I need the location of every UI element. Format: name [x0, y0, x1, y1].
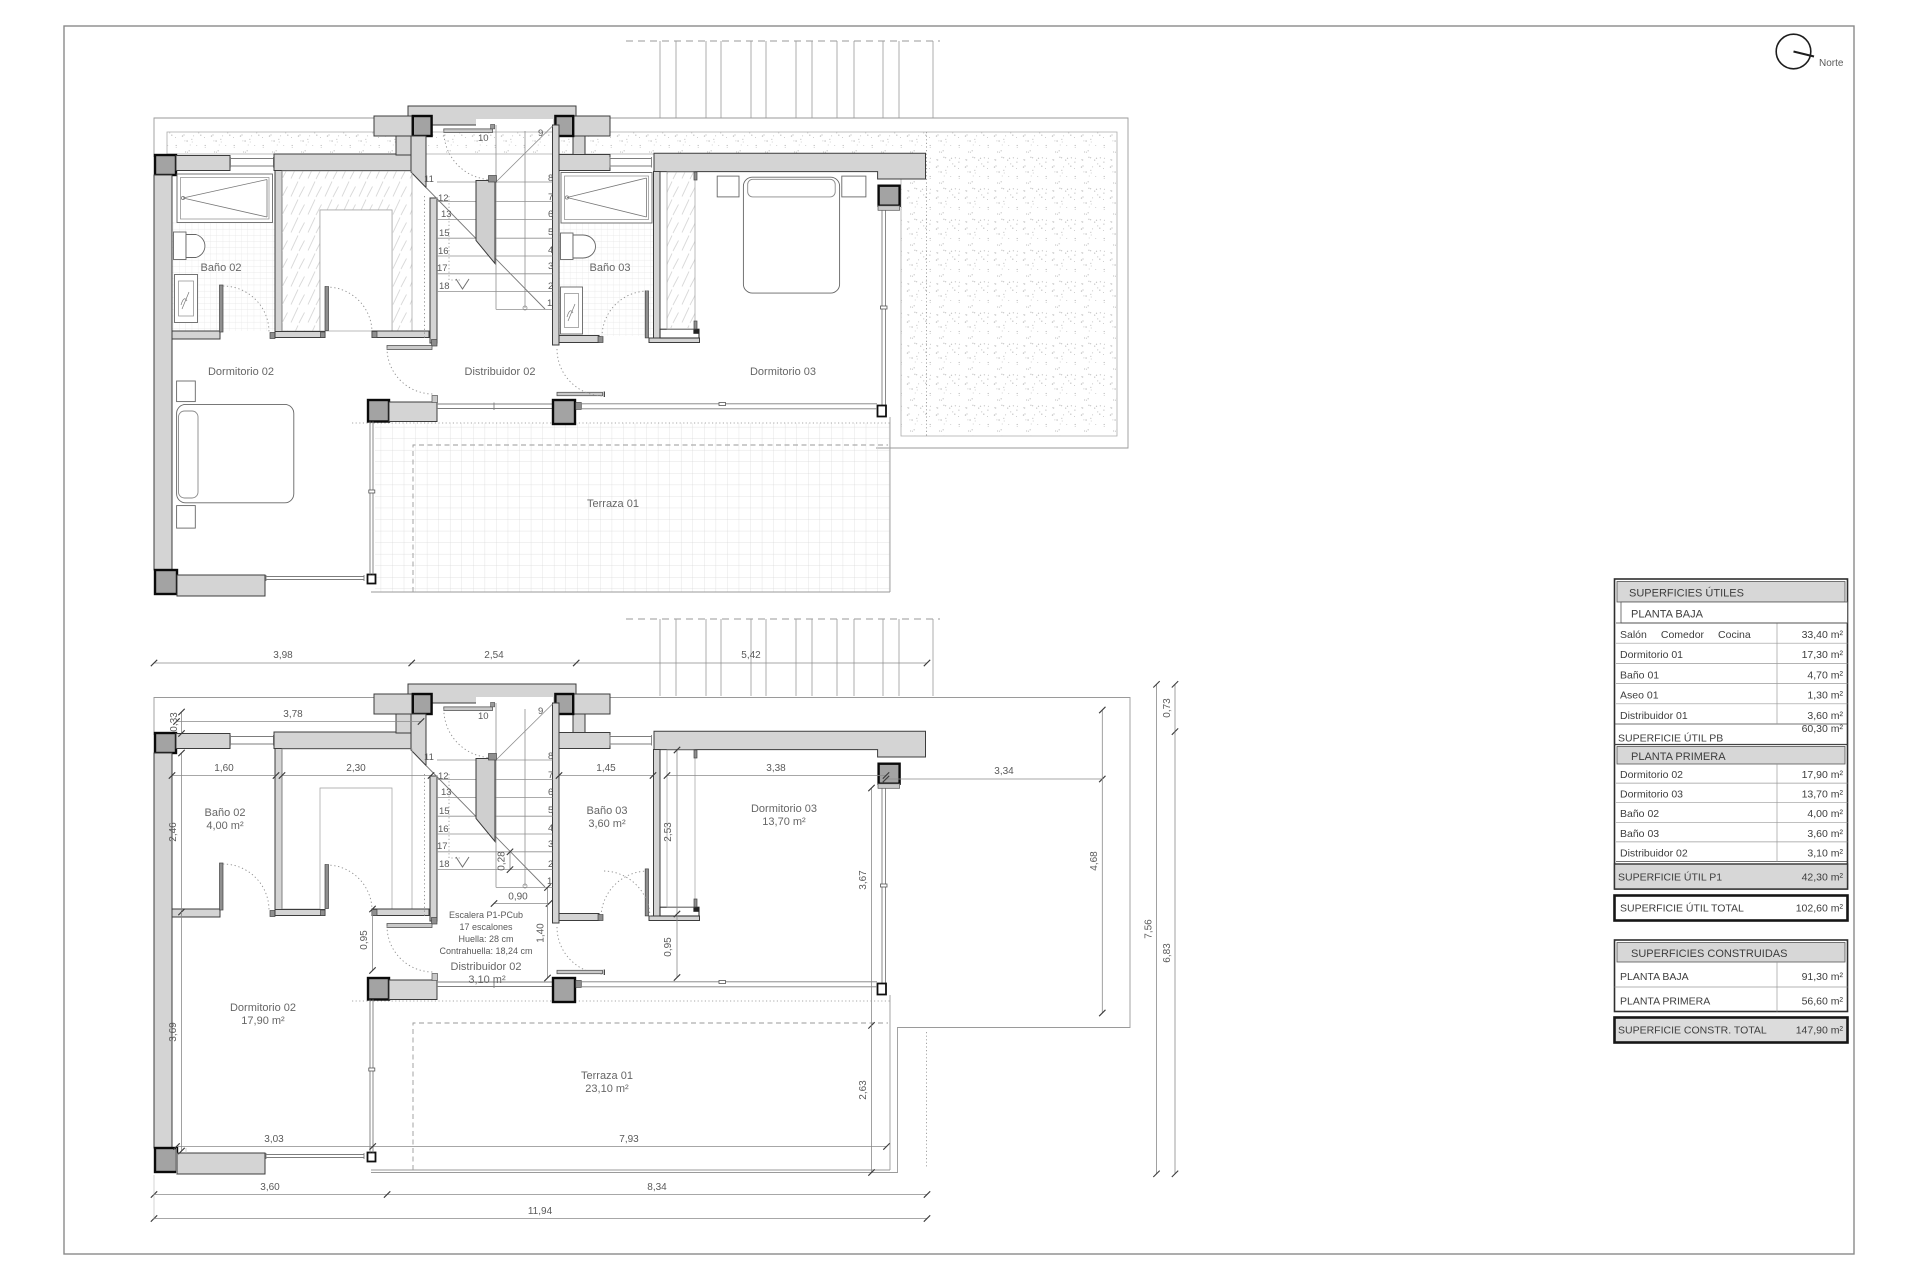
svg-text:12: 12	[438, 771, 449, 782]
svg-text:3,60 m²: 3,60 m²	[1807, 828, 1843, 840]
svg-text:17,30 m²: 17,30 m²	[1802, 649, 1844, 661]
svg-text:Baño 02: Baño 02	[205, 807, 246, 819]
svg-text:3,10 m²: 3,10 m²	[1807, 847, 1843, 859]
svg-text:Dormitorio 02: Dormitorio 02	[230, 1002, 296, 1014]
svg-text:2,54: 2,54	[484, 650, 504, 661]
svg-text:42,30 m²: 42,30 m²	[1802, 872, 1844, 884]
svg-text:Escalera P1-PCub: Escalera P1-PCub	[449, 910, 523, 920]
svg-text:2,63: 2,63	[858, 1080, 869, 1100]
svg-text:SUPERFICIES ÚTILES: SUPERFICIES ÚTILES	[1629, 587, 1744, 600]
svg-text:Terraza 01: Terraza 01	[587, 498, 639, 510]
svg-text:Dormitorio 01: Dormitorio 01	[1620, 649, 1683, 661]
svg-text:3,03: 3,03	[264, 1134, 284, 1145]
svg-text:3,60 m²: 3,60 m²	[1807, 710, 1843, 722]
svg-text:13,70 m²: 13,70 m²	[762, 816, 806, 828]
svg-text:1,45: 1,45	[596, 763, 616, 774]
svg-text:Terraza 01: Terraza 01	[581, 1070, 633, 1082]
svg-text:3,67: 3,67	[858, 870, 869, 890]
svg-text:17 escalones: 17 escalones	[459, 922, 513, 932]
svg-text:2,30: 2,30	[346, 763, 366, 774]
svg-text:Baño 02: Baño 02	[201, 262, 242, 274]
svg-text:Baño 02: Baño 02	[1620, 808, 1659, 820]
svg-text:3,10 m²: 3,10 m²	[468, 974, 506, 986]
svg-text:17: 17	[437, 263, 448, 274]
svg-text:6: 6	[548, 209, 553, 220]
svg-text:5: 5	[548, 805, 553, 816]
svg-text:11: 11	[424, 174, 434, 185]
svg-text:8: 8	[548, 173, 553, 184]
svg-text:2,53: 2,53	[663, 822, 674, 842]
svg-text:Dormitorio 02: Dormitorio 02	[1620, 769, 1683, 781]
svg-text:60,30 m²: 60,30 m²	[1802, 723, 1844, 735]
svg-text:10: 10	[478, 711, 489, 722]
svg-text:18: 18	[439, 281, 450, 292]
svg-text:15: 15	[439, 806, 450, 817]
svg-text:PLANTA BAJA: PLANTA BAJA	[1620, 971, 1689, 983]
svg-text:2: 2	[548, 281, 553, 292]
svg-text:Distribuidor 02: Distribuidor 02	[465, 366, 536, 378]
svg-text:23,10 m²: 23,10 m²	[585, 1083, 629, 1095]
svg-text:8: 8	[548, 751, 553, 762]
svg-text:9: 9	[538, 706, 543, 717]
svg-text:13,70 m²: 13,70 m²	[1802, 789, 1844, 801]
svg-text:91,30 m²: 91,30 m²	[1802, 971, 1844, 983]
svg-text:0,28: 0,28	[497, 851, 508, 871]
svg-text:3,78: 3,78	[283, 709, 303, 720]
svg-text:9: 9	[538, 128, 543, 139]
svg-text:33,40 m²: 33,40 m²	[1802, 629, 1844, 641]
svg-text:102,60 m²: 102,60 m²	[1796, 903, 1844, 915]
svg-text:Baño 03: Baño 03	[590, 262, 631, 274]
svg-text:13: 13	[441, 209, 452, 220]
svg-text:Dormitorio 03: Dormitorio 03	[751, 803, 817, 815]
svg-text:Baño 03: Baño 03	[1620, 828, 1659, 840]
svg-text:0,95: 0,95	[663, 937, 674, 957]
svg-text:2,46: 2,46	[168, 822, 179, 842]
svg-text:17,90 m²: 17,90 m²	[241, 1015, 285, 1027]
svg-text:18: 18	[439, 859, 450, 870]
svg-text:3,60 m²: 3,60 m²	[588, 818, 626, 830]
svg-text:5,42: 5,42	[741, 650, 761, 661]
svg-text:4,00 m²: 4,00 m²	[206, 820, 244, 832]
svg-text:4,70 m²: 4,70 m²	[1807, 669, 1843, 681]
svg-text:7: 7	[548, 770, 553, 781]
svg-text:Baño 03: Baño 03	[587, 805, 628, 817]
svg-text:16: 16	[438, 246, 449, 257]
svg-text:Huella: 28 cm: Huella: 28 cm	[458, 934, 513, 944]
svg-text:11,94: 11,94	[528, 1206, 553, 1217]
svg-text:17: 17	[437, 841, 448, 852]
svg-text:3,60: 3,60	[260, 1182, 280, 1193]
svg-text:6,83: 6,83	[1162, 943, 1173, 963]
svg-text:Dormitorio 02: Dormitorio 02	[208, 366, 274, 378]
svg-text:SUPERFICIE ÚTIL PB: SUPERFICIE ÚTIL PB	[1618, 732, 1723, 745]
svg-text:1,60: 1,60	[214, 763, 234, 774]
svg-text:4,68: 4,68	[1089, 851, 1100, 871]
svg-text:4: 4	[548, 823, 553, 834]
svg-text:SUPERFICIE ÚTIL TOTAL: SUPERFICIE ÚTIL TOTAL	[1620, 902, 1744, 915]
svg-text:3,34: 3,34	[994, 766, 1014, 777]
svg-text:Distribuidor 02: Distribuidor 02	[451, 961, 522, 973]
svg-text:Dormitorio 03: Dormitorio 03	[750, 366, 816, 378]
svg-text:1,40: 1,40	[536, 923, 547, 943]
svg-text:4,00 m²: 4,00 m²	[1807, 808, 1843, 820]
svg-text:4: 4	[548, 245, 553, 256]
svg-text:PLANTA BAJA: PLANTA BAJA	[1631, 609, 1704, 621]
svg-text:3: 3	[548, 839, 553, 850]
svg-text:3: 3	[548, 261, 553, 272]
svg-text:Norte: Norte	[1819, 58, 1844, 69]
svg-text:15: 15	[439, 228, 450, 239]
svg-text:3,38: 3,38	[766, 763, 786, 774]
svg-text:17,90 m²: 17,90 m²	[1802, 769, 1844, 781]
svg-text:Distribuidor 02: Distribuidor 02	[1620, 847, 1688, 859]
svg-text:Contrahuella: 18,24 cm: Contrahuella: 18,24 cm	[439, 946, 532, 956]
svg-text:13: 13	[441, 787, 452, 798]
svg-text:3,69: 3,69	[168, 1022, 179, 1042]
svg-text:Aseo 01: Aseo 01	[1620, 690, 1659, 702]
svg-text:12: 12	[438, 193, 449, 204]
svg-text:2: 2	[548, 859, 553, 870]
svg-text:SUPERFICIES CONSTRUIDAS: SUPERFICIES CONSTRUIDAS	[1631, 948, 1787, 960]
svg-text:147,90 m²: 147,90 m²	[1796, 1025, 1844, 1037]
svg-text:3,98: 3,98	[273, 650, 293, 661]
svg-text:1,30 m²: 1,30 m²	[1807, 690, 1843, 702]
svg-text:8,34: 8,34	[647, 1182, 667, 1193]
svg-text:SUPERFICIE CONSTR. TOTAL: SUPERFICIE CONSTR. TOTAL	[1618, 1025, 1767, 1037]
svg-text:5: 5	[548, 227, 553, 238]
svg-text:7,93: 7,93	[619, 1134, 639, 1145]
svg-text:10: 10	[478, 133, 489, 144]
svg-text:7: 7	[548, 192, 553, 203]
svg-text:7,56: 7,56	[1144, 919, 1155, 939]
svg-text:Dormitorio 03: Dormitorio 03	[1620, 789, 1683, 801]
svg-text:PLANTA PRIMERA: PLANTA PRIMERA	[1631, 751, 1726, 763]
svg-text:0,73: 0,73	[1162, 698, 1173, 718]
svg-text:PLANTA PRIMERA: PLANTA PRIMERA	[1620, 996, 1710, 1008]
svg-text:1: 1	[547, 298, 552, 309]
svg-text:0,33: 0,33	[169, 712, 180, 732]
svg-text:0,95: 0,95	[359, 930, 370, 950]
svg-text:SUPERFICIE ÚTIL P1: SUPERFICIE ÚTIL P1	[1618, 871, 1722, 884]
svg-text:Distribuidor 01: Distribuidor 01	[1620, 710, 1688, 722]
svg-text:16: 16	[438, 824, 449, 835]
svg-text:0,90: 0,90	[508, 892, 528, 903]
svg-text:56,60 m²: 56,60 m²	[1802, 996, 1844, 1008]
svg-text:SalónComedorCocina: SalónComedorCocina	[1620, 629, 1751, 641]
svg-text:11: 11	[424, 752, 434, 763]
svg-text:6: 6	[548, 787, 553, 798]
svg-text:Baño 01: Baño 01	[1620, 669, 1659, 681]
